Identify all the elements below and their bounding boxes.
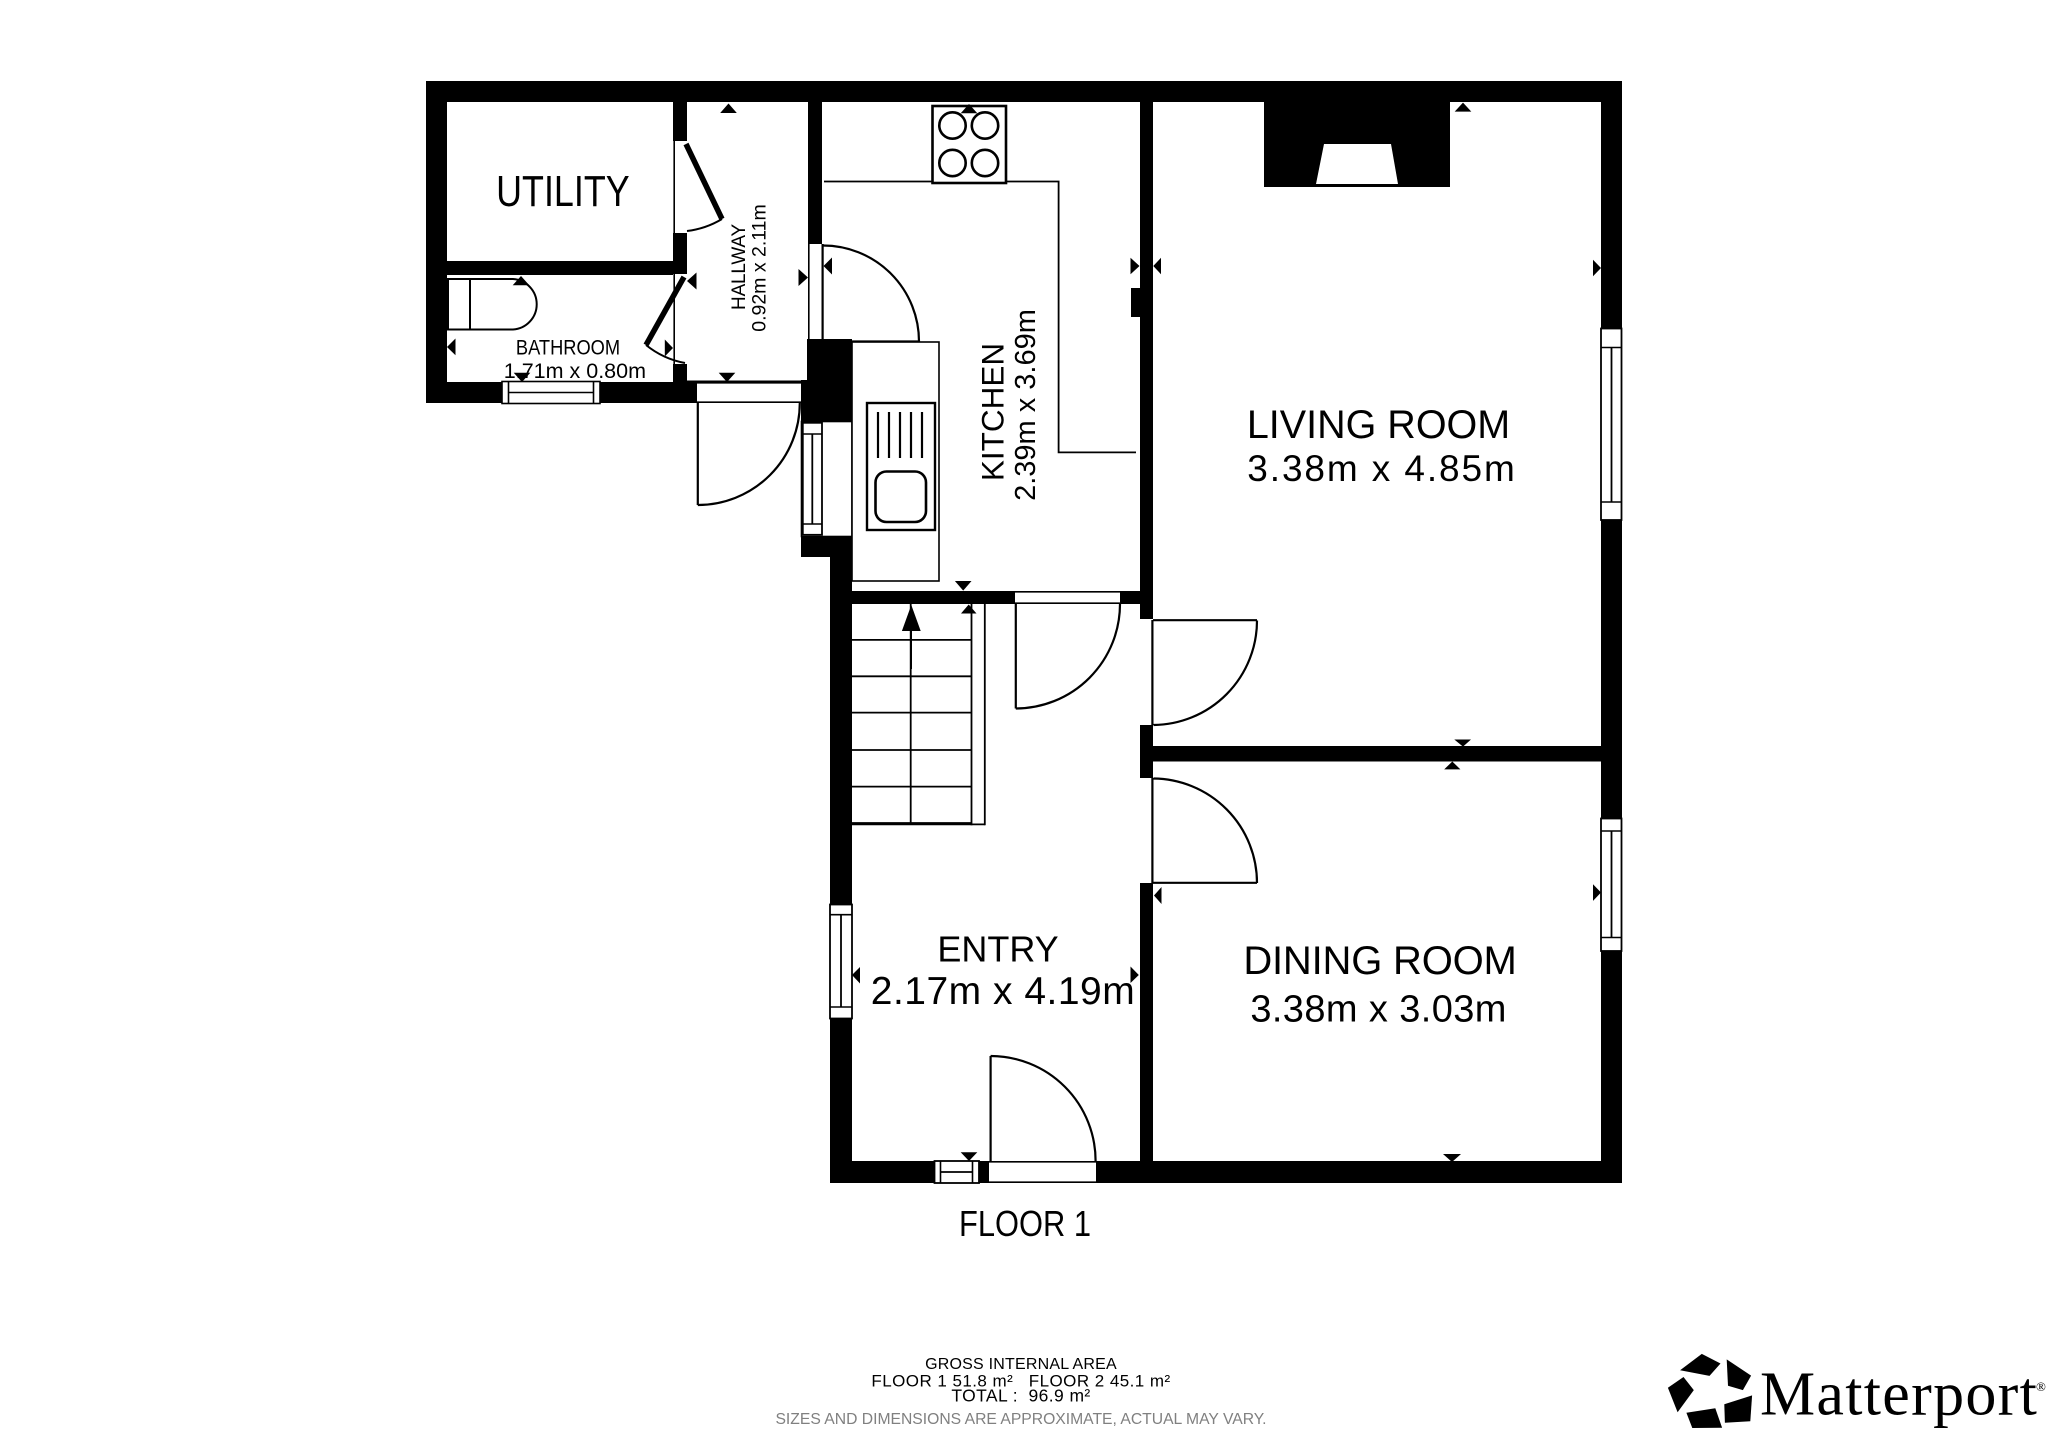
svg-text:2.17m x 4.19m: 2.17m x 4.19m xyxy=(871,970,1135,1013)
svg-text:ENTRY: ENTRY xyxy=(937,929,1058,970)
svg-text:FLOOR 1: FLOOR 1 xyxy=(959,1205,1091,1245)
svg-text:HALLWAY: HALLWAY xyxy=(729,224,750,310)
svg-text:DINING ROOM: DINING ROOM xyxy=(1243,939,1516,983)
svg-text:UTILITY: UTILITY xyxy=(496,167,629,216)
svg-text:SIZES AND DIMENSIONS ARE APPRO: SIZES AND DIMENSIONS ARE APPROXIMATE, AC… xyxy=(775,1411,1266,1428)
svg-text:1.71m x 0.80m: 1.71m x 0.80m xyxy=(504,359,646,383)
svg-text:LIVING ROOM: LIVING ROOM xyxy=(1247,403,1510,447)
svg-text:BATHROOM: BATHROOM xyxy=(516,336,620,359)
svg-text:TOTAL : 96.9 m²: TOTAL : 96.9 m² xyxy=(951,1386,1090,1406)
svg-text:3.38m x 4.85m: 3.38m x 4.85m xyxy=(1247,448,1516,489)
svg-text:KITCHEN: KITCHEN xyxy=(975,343,1011,481)
svg-text:GROSS INTERNAL AREA: GROSS INTERNAL AREA xyxy=(925,1356,1117,1373)
svg-text:Matterport: Matterport xyxy=(1760,1361,2038,1429)
svg-text:0.92m x 2.11m: 0.92m x 2.11m xyxy=(749,204,771,332)
svg-text:3.38m x 3.03m: 3.38m x 3.03m xyxy=(1250,989,1507,1031)
svg-text:®: ® xyxy=(2036,1379,2046,1394)
svg-text:2.39m x 3.69m: 2.39m x 3.69m xyxy=(1010,309,1042,501)
